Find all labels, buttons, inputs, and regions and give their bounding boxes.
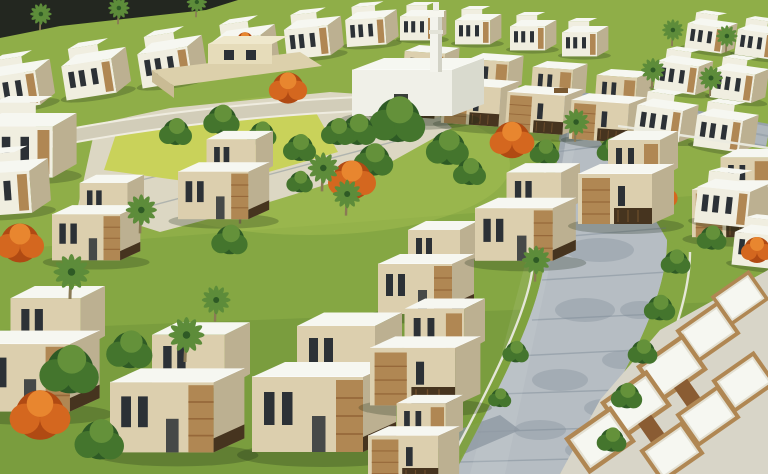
bench (554, 88, 568, 93)
clubhouse-window (224, 50, 234, 60)
clubhouse-window (246, 50, 256, 60)
clubhouse-upper (208, 44, 272, 64)
minaret (428, 2, 444, 72)
aerial-compound-render: Aerial 3D rendering of a residential vil… (0, 0, 768, 474)
render-canvas (0, 0, 768, 474)
